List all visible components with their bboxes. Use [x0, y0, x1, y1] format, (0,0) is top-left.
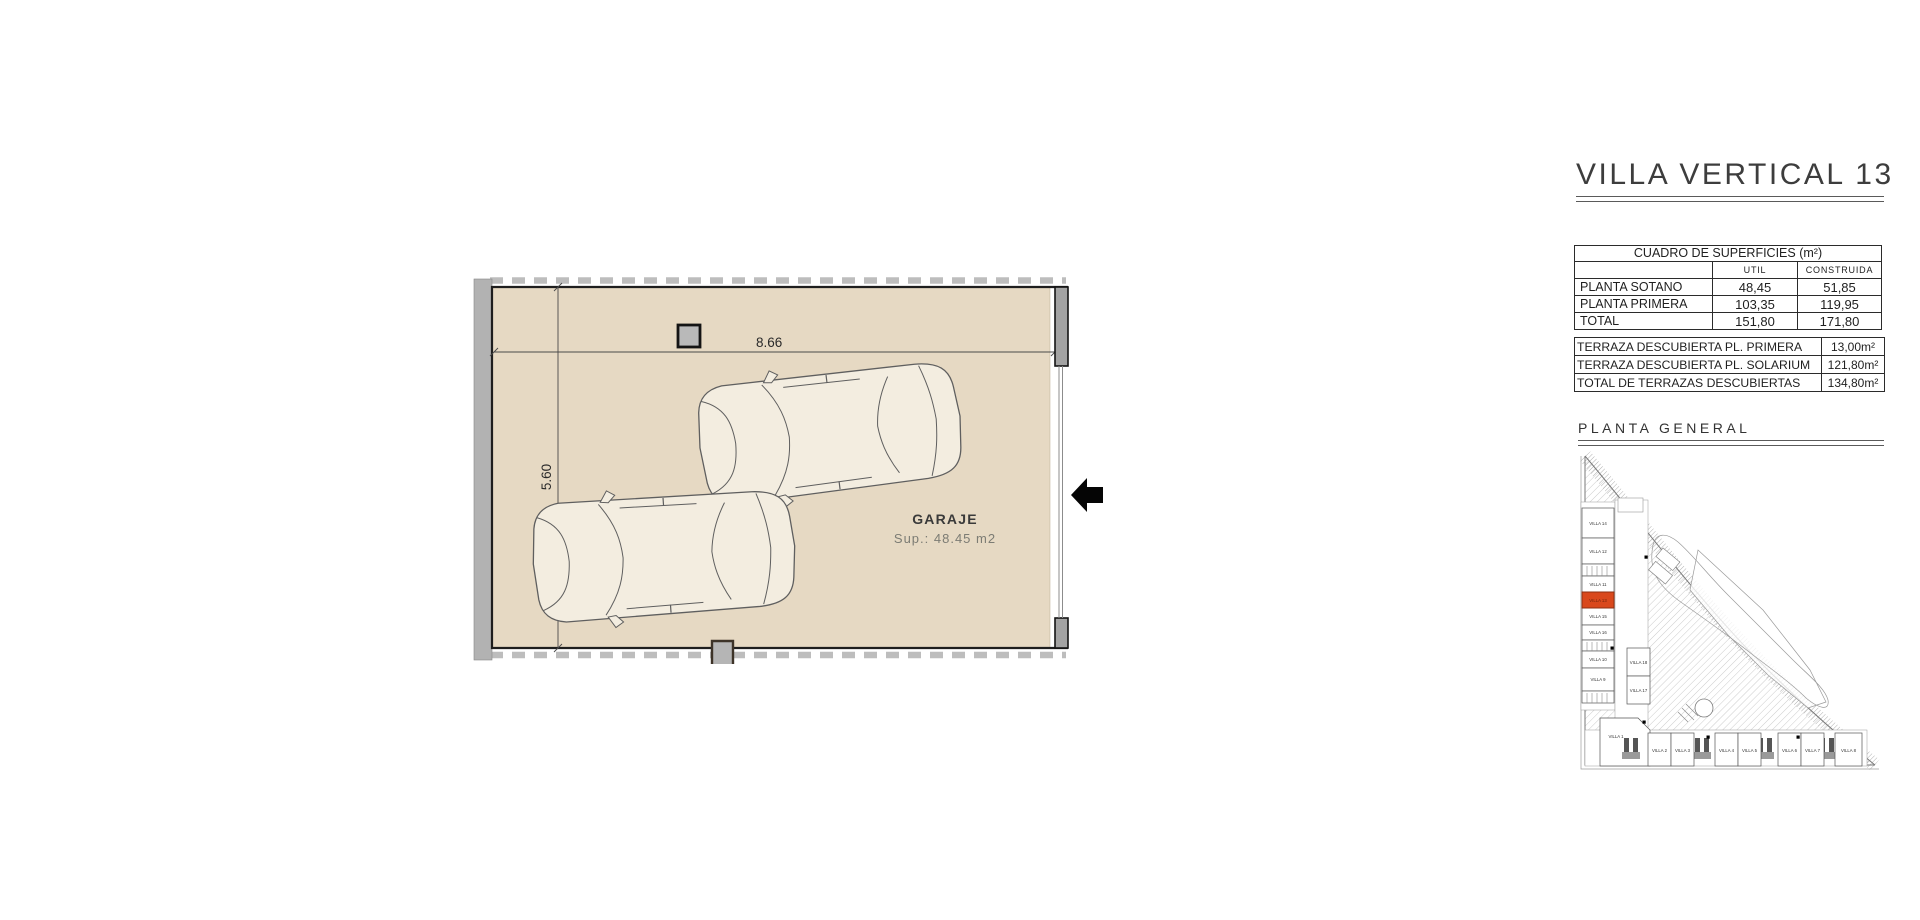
row-util: 151,80: [1713, 313, 1798, 330]
villa-label: VILLA 4: [1719, 748, 1735, 753]
page-title: VILLA VERTICAL 13: [1576, 158, 1884, 192]
table-row: TOTAL DE TERRAZAS DESCUBIERTAS 134,80m²: [1575, 374, 1885, 392]
col-header-construida: CONSTRUIDA: [1798, 262, 1882, 279]
site-plan-underline: [1578, 440, 1884, 446]
row-value: 13,00m²: [1822, 338, 1885, 356]
room-area-label: Sup.: 48.45 m2: [894, 531, 996, 546]
row-label: TERRAZA DESCUBIERTA PL. SOLARIUM: [1575, 356, 1822, 374]
row-label: TERRAZA DESCUBIERTA PL. PRIMERA: [1575, 338, 1822, 356]
surfaces-table-title: CUADRO DE SUPERFICIES (m²): [1575, 246, 1882, 262]
row-label: PLANTA SOTANO: [1575, 279, 1713, 296]
left-wall: [474, 279, 492, 660]
middle-villa-boxes: [1627, 648, 1650, 704]
bottom-door: [712, 641, 733, 664]
site-plan-title: PLANTA GENERAL: [1578, 420, 1884, 436]
villa-label: VILLA 5: [1742, 748, 1758, 753]
villa-label: VILLA 12: [1589, 549, 1607, 554]
room-label: GARAJE: [912, 511, 978, 527]
villa-label: VILLA 9: [1590, 677, 1606, 682]
row-value: 134,80m²: [1822, 374, 1885, 392]
villa-label: VILLA 17: [1630, 688, 1648, 693]
row-construida: 171,80: [1798, 313, 1882, 330]
table-row: PLANTA PRIMERA 103,35 119,95: [1575, 296, 1882, 313]
col-header-util: UTIL: [1713, 262, 1798, 279]
corridor-top-box: [1618, 498, 1643, 512]
row-label: PLANTA PRIMERA: [1575, 296, 1713, 313]
right-wall-top: [1055, 287, 1068, 366]
row-util: 103,35: [1713, 296, 1798, 313]
villa-label: VILLA 1: [1608, 734, 1624, 739]
site-plan: VILLA 14 VILLA 12 VILLA 11 VILLA 13 VILL…: [1578, 450, 1884, 774]
villa-label: VILLA 8: [1841, 748, 1857, 753]
villa-label: VILLA 7: [1805, 748, 1821, 753]
garage-door-line: [1059, 366, 1063, 618]
villa-label: VILLA 16: [1589, 630, 1607, 635]
villa-label: VILLA 2: [1652, 748, 1668, 753]
row-util: 48,45: [1713, 279, 1798, 296]
road-corridor: [1615, 500, 1648, 746]
table-row: PLANTA SOTANO 48,45 51,85: [1575, 279, 1882, 296]
villa-label: VILLA 15: [1589, 614, 1607, 619]
terraces-table: TERRAZA DESCUBIERTA PL. PRIMERA 13,00m² …: [1574, 337, 1885, 392]
row-construida: 119,95: [1798, 296, 1882, 313]
villa-label-highlighted: VILLA 13: [1589, 598, 1607, 603]
row-value: 121,80m²: [1822, 356, 1885, 374]
table-header-row: UTIL CONSTRUIDA: [1575, 262, 1882, 279]
villa-label: VILLA 6: [1782, 748, 1798, 753]
garage-floor-plan: 8.66 5.60 GARAJE Sup.: 48.45 m2: [465, 270, 1105, 670]
right-wall-bottom: [1055, 618, 1068, 648]
table-row: TERRAZA DESCUBIERTA PL. PRIMERA 13,00m²: [1575, 338, 1885, 356]
row-label: TOTAL: [1575, 313, 1713, 330]
dim-width-label: 8.66: [756, 335, 782, 350]
title-underline: [1576, 196, 1884, 202]
villa-label: VILLA 3: [1675, 748, 1691, 753]
roundabout: [1695, 699, 1713, 717]
column: [678, 325, 700, 347]
dim-height-label: 5.60: [539, 464, 554, 490]
entrance-left-arrow-icon: [1071, 478, 1103, 512]
villa-label: VILLA 10: [1589, 657, 1607, 662]
plan-sheet: 8.66 5.60 GARAJE Sup.: 48.45 m2 VILLA VE…: [0, 0, 1920, 920]
table-row: TOTAL 151,80 171,80: [1575, 313, 1882, 330]
surfaces-table: CUADRO DE SUPERFICIES (m²) UTIL CONSTRUI…: [1574, 245, 1882, 330]
villa-label: VILLA 14: [1589, 521, 1607, 526]
row-construida: 51,85: [1798, 279, 1882, 296]
row-label: TOTAL DE TERRAZAS DESCUBIERTAS: [1575, 374, 1822, 392]
villa-label: VILLA 18: [1630, 660, 1648, 665]
table-row: TERRAZA DESCUBIERTA PL. SOLARIUM 121,80m…: [1575, 356, 1885, 374]
villa-label: VILLA 11: [1589, 582, 1607, 587]
